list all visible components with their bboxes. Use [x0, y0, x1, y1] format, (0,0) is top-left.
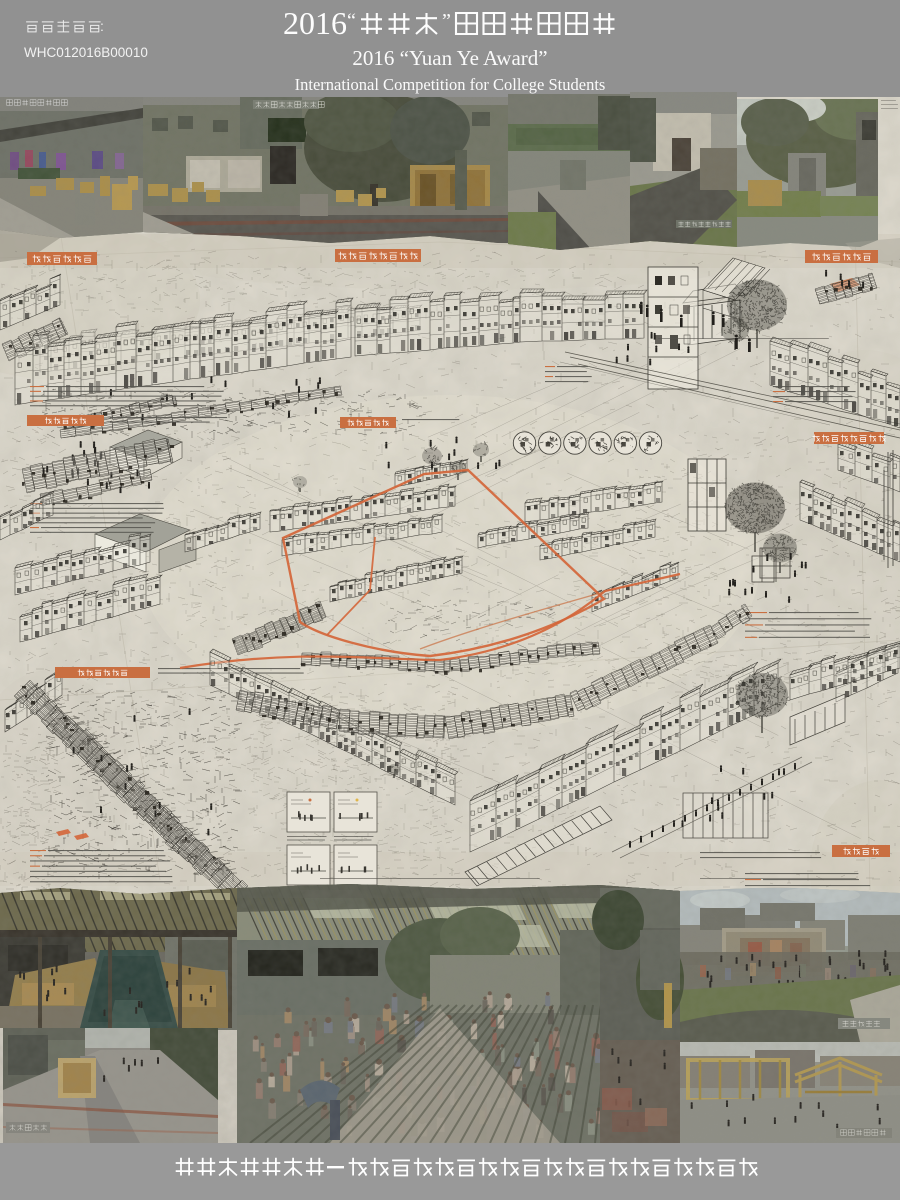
svg-text::: : — [100, 18, 104, 34]
svg-text:”: ” — [442, 10, 451, 32]
svg-text:“: “ — [347, 10, 356, 32]
svg-text:International Competition for: International Competition for College St… — [295, 75, 606, 94]
svg-text:2016 “Yuan Ye Award”: 2016 “Yuan Ye Award” — [352, 46, 547, 70]
svg-text:2016: 2016 — [283, 5, 347, 41]
svg-text:WHC012016B00010: WHC012016B00010 — [24, 45, 148, 60]
